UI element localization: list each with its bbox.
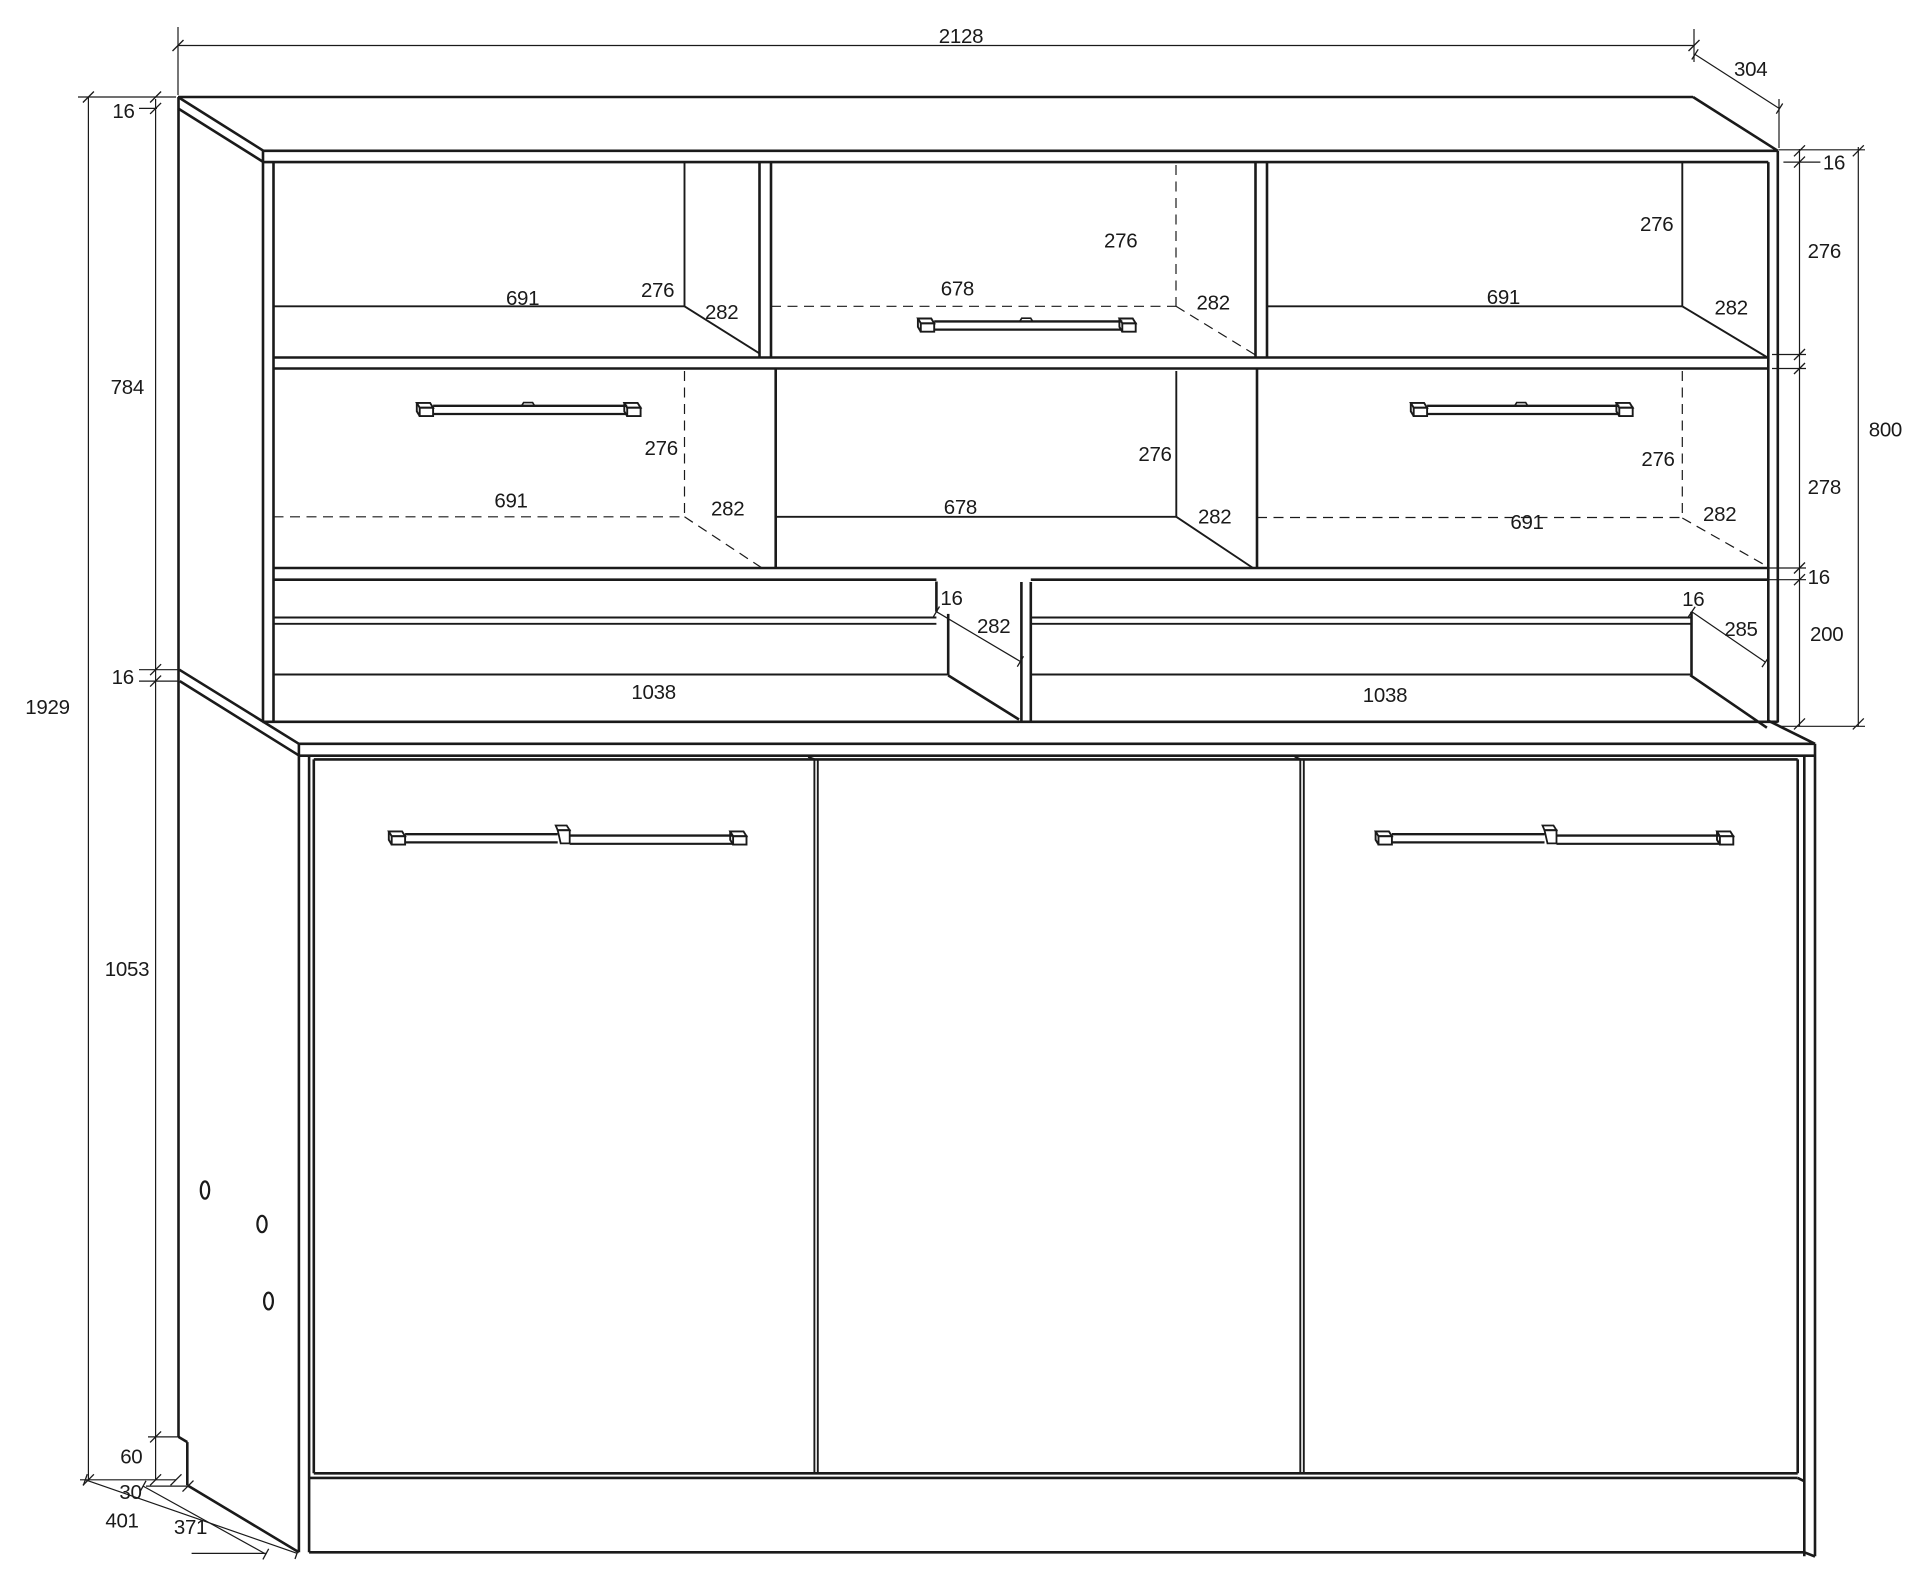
svg-text:1053: 1053 (105, 958, 149, 981)
svg-text:16: 16 (1808, 566, 1830, 589)
svg-text:282: 282 (1703, 503, 1736, 526)
svg-text:16: 16 (112, 666, 134, 689)
svg-text:678: 678 (944, 496, 977, 519)
svg-text:800: 800 (1869, 419, 1902, 442)
svg-text:691: 691 (506, 287, 539, 310)
svg-text:691: 691 (494, 490, 527, 513)
svg-text:276: 276 (641, 279, 674, 302)
svg-text:401: 401 (105, 1510, 138, 1533)
svg-text:282: 282 (1197, 292, 1230, 315)
svg-text:16: 16 (112, 100, 134, 123)
svg-text:16: 16 (1823, 152, 1845, 175)
svg-text:276: 276 (1808, 240, 1841, 263)
svg-text:276: 276 (1104, 229, 1137, 252)
svg-text:276: 276 (645, 437, 678, 460)
svg-text:371: 371 (174, 1516, 207, 1539)
svg-text:304: 304 (1734, 58, 1767, 81)
svg-text:276: 276 (1640, 213, 1673, 236)
svg-text:285: 285 (1724, 618, 1757, 641)
svg-text:278: 278 (1808, 476, 1841, 499)
svg-text:16: 16 (1682, 588, 1704, 611)
svg-text:691: 691 (1510, 511, 1543, 534)
svg-text:276: 276 (1641, 448, 1674, 471)
svg-text:784: 784 (111, 376, 144, 399)
svg-text:2128: 2128 (939, 25, 983, 48)
svg-text:282: 282 (977, 615, 1010, 638)
svg-text:282: 282 (1198, 506, 1231, 529)
svg-text:1038: 1038 (1363, 684, 1407, 707)
svg-text:282: 282 (705, 301, 738, 324)
svg-text:1929: 1929 (25, 696, 69, 719)
svg-text:691: 691 (1487, 286, 1520, 309)
svg-text:1038: 1038 (631, 681, 675, 704)
svg-text:200: 200 (1810, 623, 1843, 646)
svg-text:678: 678 (941, 278, 974, 301)
svg-text:282: 282 (1715, 297, 1748, 320)
svg-text:282: 282 (711, 498, 744, 521)
svg-text:60: 60 (120, 1446, 142, 1469)
svg-text:276: 276 (1138, 443, 1171, 466)
svg-text:16: 16 (940, 587, 962, 610)
